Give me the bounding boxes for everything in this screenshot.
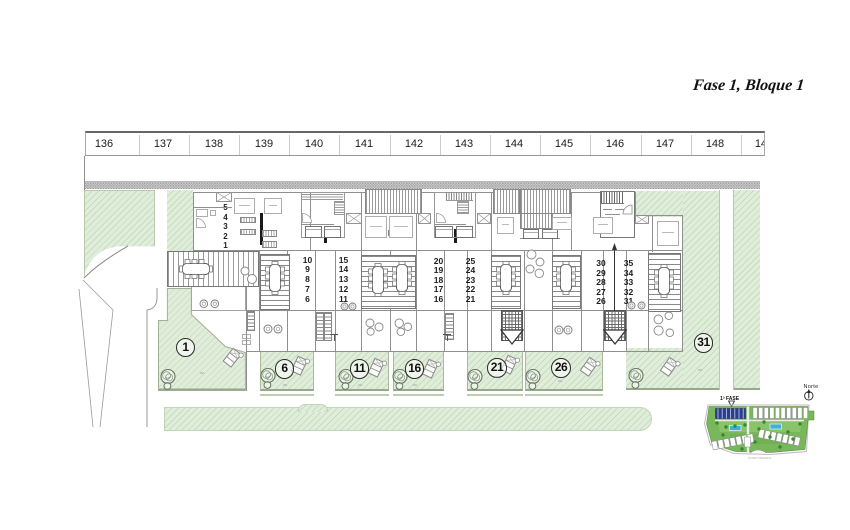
svg-text:PLANO GENERAL: PLANO GENERAL xyxy=(748,456,772,460)
